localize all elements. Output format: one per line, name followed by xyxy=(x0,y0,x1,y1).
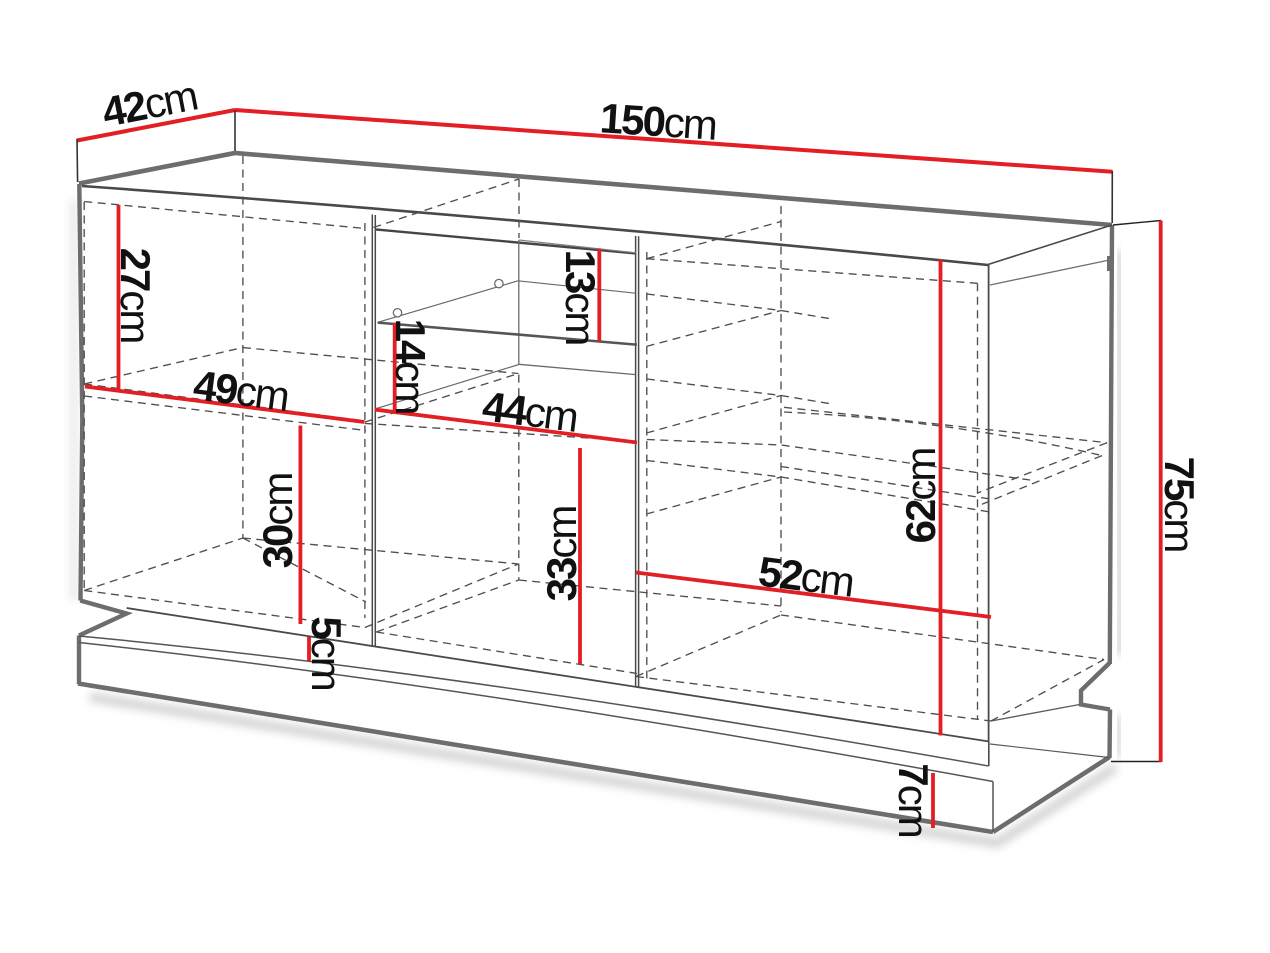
svg-text:14cm: 14cm xyxy=(387,319,434,414)
svg-text:27cm: 27cm xyxy=(112,248,159,343)
svg-text:7cm: 7cm xyxy=(890,763,937,836)
svg-text:5cm: 5cm xyxy=(303,616,350,689)
svg-text:75cm: 75cm xyxy=(1156,457,1203,552)
svg-text:150cm: 150cm xyxy=(599,94,718,148)
svg-text:62cm: 62cm xyxy=(897,449,944,544)
svg-text:13cm: 13cm xyxy=(557,250,604,345)
svg-text:33cm: 33cm xyxy=(538,507,585,602)
svg-text:30cm: 30cm xyxy=(254,474,301,569)
